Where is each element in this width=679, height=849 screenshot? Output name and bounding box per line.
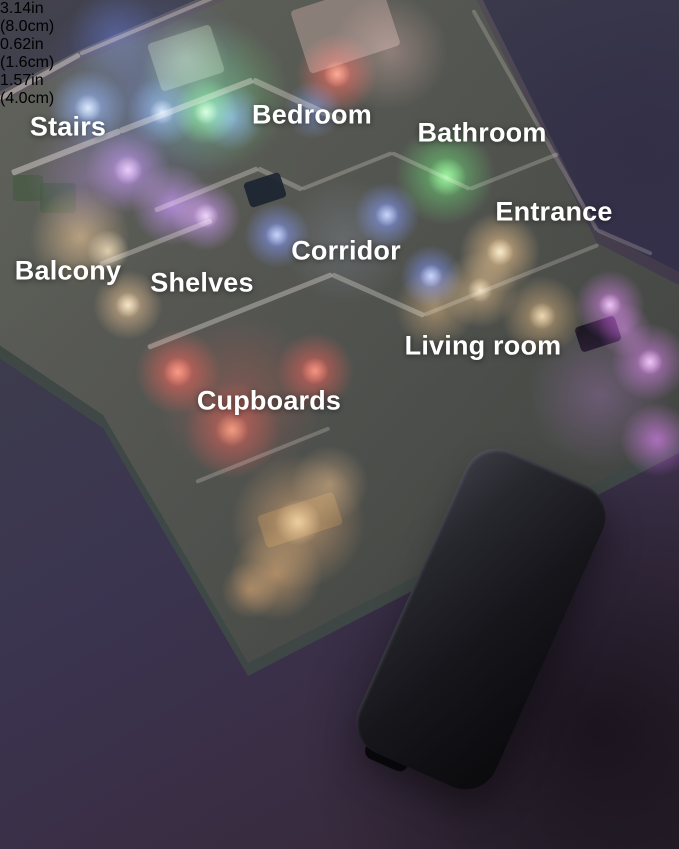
depth-dimension-label: 0.62in (1.6cm) [0, 36, 679, 72]
width-dimension-label: 1.57in (4.0cm) [0, 72, 679, 108]
product-infographic: StairsBedroomBathroomEntranceCorridorBal… [0, 0, 679, 849]
depth-centimeters: (1.6cm) [0, 54, 679, 72]
height-dimension-label: 3.14in (8.0cm) [0, 0, 679, 36]
height-centimeters: (8.0cm) [0, 18, 679, 36]
width-inches: 1.57in [0, 72, 679, 90]
depth-inches: 0.62in [0, 36, 679, 54]
dimension-annotations: 3.14in (8.0cm) 0.62in (1.6cm) 1.57in (4.… [0, 0, 679, 849]
width-centimeters: (4.0cm) [0, 90, 679, 108]
height-inches: 3.14in [0, 0, 679, 18]
